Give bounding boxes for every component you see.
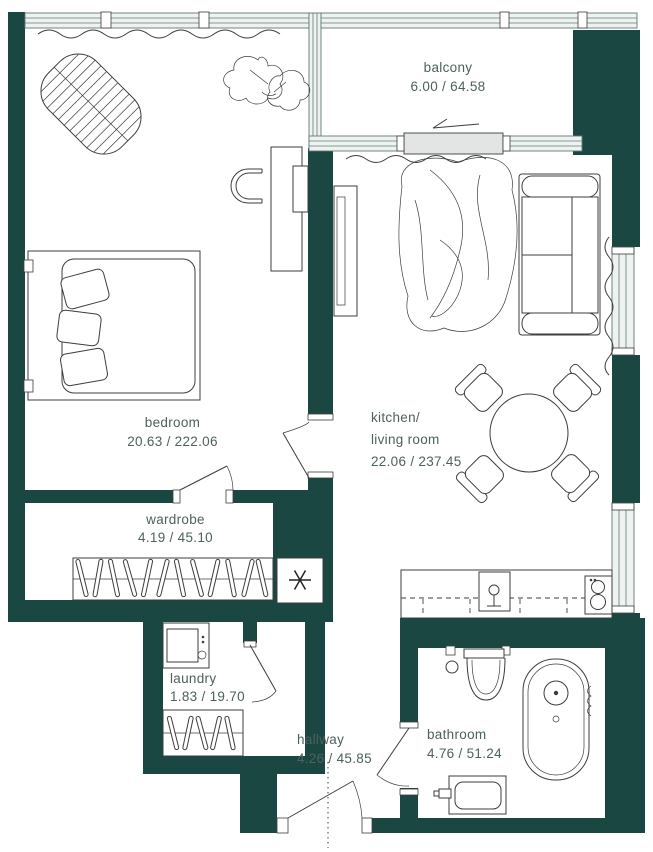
window-mullion <box>199 12 209 28</box>
room-area: 20.63 / 222.06 <box>85 432 260 451</box>
window-jamb <box>612 348 634 355</box>
room-name: balcony <box>358 58 538 77</box>
nightstand <box>24 380 33 392</box>
wall-shelf <box>293 166 308 212</box>
room-area: 22.06 / 237.45 <box>371 451 462 473</box>
room-area: 6.00 / 64.58 <box>358 77 538 96</box>
room-name: laundry <box>170 670 245 688</box>
wall-left <box>8 12 25 622</box>
room-area: 4.19 / 45.10 <box>88 529 263 547</box>
window-jamb <box>397 136 404 151</box>
living-window-lower <box>612 503 634 613</box>
room-area: 4.26 / 45.85 <box>297 749 372 768</box>
room-name: kitchen/ <box>371 407 462 429</box>
entrance-door <box>277 781 372 833</box>
window-jamb <box>612 503 634 510</box>
room-label-balcony: balcony 6.00 / 64.58 <box>358 58 538 96</box>
wall-central-upper <box>308 148 333 418</box>
laundry-hangers <box>163 710 243 756</box>
bathroom-door <box>377 722 418 795</box>
desk-chair <box>231 169 262 203</box>
dining-table <box>490 394 568 472</box>
room-name: bathroom <box>427 725 502 744</box>
kitchen-sink <box>479 572 510 611</box>
balcony-top-window <box>321 13 637 28</box>
wall-balcony-right-block <box>573 30 640 155</box>
curtain-wave-bedroom <box>38 30 280 38</box>
dining-set <box>454 363 603 505</box>
wall-bedroom-bottom-right <box>233 490 308 503</box>
wall-fitting <box>446 646 455 655</box>
room-name: bedroom <box>85 413 260 432</box>
window-mullion <box>101 12 111 28</box>
floor-plan-page: balcony 6.00 / 64.58 bedroom 20.63 / 222… <box>0 0 653 852</box>
bedroom-furniture <box>24 30 310 400</box>
wall-bottom-right <box>372 818 645 833</box>
balcony-sliding-door <box>404 133 503 154</box>
bathtub <box>523 659 589 780</box>
bathroom-sink <box>434 776 506 814</box>
service-shaft <box>277 558 323 603</box>
kitchen-fixtures <box>401 570 612 618</box>
wardrobe-fixtures <box>73 558 273 600</box>
window-mullion <box>578 12 587 28</box>
room-label-laundry: laundry 1.83 / 19.70 <box>170 670 245 706</box>
living-rug <box>399 157 517 331</box>
room-label-hallway: hallway 4.26 / 45.85 <box>297 730 372 768</box>
room-area: 4.76 / 51.24 <box>427 744 502 763</box>
living-window-upper <box>612 247 634 355</box>
wall-right-upper <box>612 155 640 247</box>
room-name: hallway <box>297 730 372 749</box>
sofa <box>519 174 600 335</box>
room-area: 1.83 / 19.70 <box>170 688 245 706</box>
room-label-wardrobe: wardrobe 4.19 / 45.10 <box>88 511 263 547</box>
wall-hall-bath-upper <box>400 648 418 728</box>
wall-laundry-left <box>143 622 163 762</box>
washing-machine <box>163 623 209 668</box>
tv-console <box>334 186 357 316</box>
window-jamb <box>612 247 634 254</box>
bedroom-door <box>173 466 233 503</box>
wall-kitchen-band <box>400 618 645 648</box>
bedroom-window <box>25 13 309 28</box>
kitchen-door <box>283 414 333 478</box>
room-name: wardrobe <box>88 511 263 529</box>
balcony-left-window <box>309 13 321 150</box>
room-label-bathroom: bathroom 4.76 / 51.24 <box>427 725 502 763</box>
nightstand <box>24 260 33 272</box>
monstera-plant <box>224 56 310 110</box>
room-label-bedroom: bedroom 20.63 / 222.06 <box>85 413 260 451</box>
balcony-entry-arrow-icon <box>433 119 479 128</box>
lounge-chair <box>30 43 152 165</box>
wall-laundry-stub <box>243 622 257 643</box>
wall-right-mid <box>612 355 640 503</box>
room-name: living room <box>371 429 462 451</box>
window-mullion <box>500 12 509 28</box>
wall-entrance-left-block <box>240 774 277 833</box>
window-jamb <box>612 606 634 613</box>
window-jamb <box>503 136 510 151</box>
room-label-kitchen-living: kitchen/ living room 22.06 / 237.45 <box>371 407 462 473</box>
wall-bedroom-bottom-left <box>25 490 173 503</box>
stove-cooktop <box>585 576 612 614</box>
toilet <box>446 649 505 700</box>
wall-bathroom-right <box>605 648 645 818</box>
bed <box>28 251 200 400</box>
laundry-door <box>244 641 276 702</box>
